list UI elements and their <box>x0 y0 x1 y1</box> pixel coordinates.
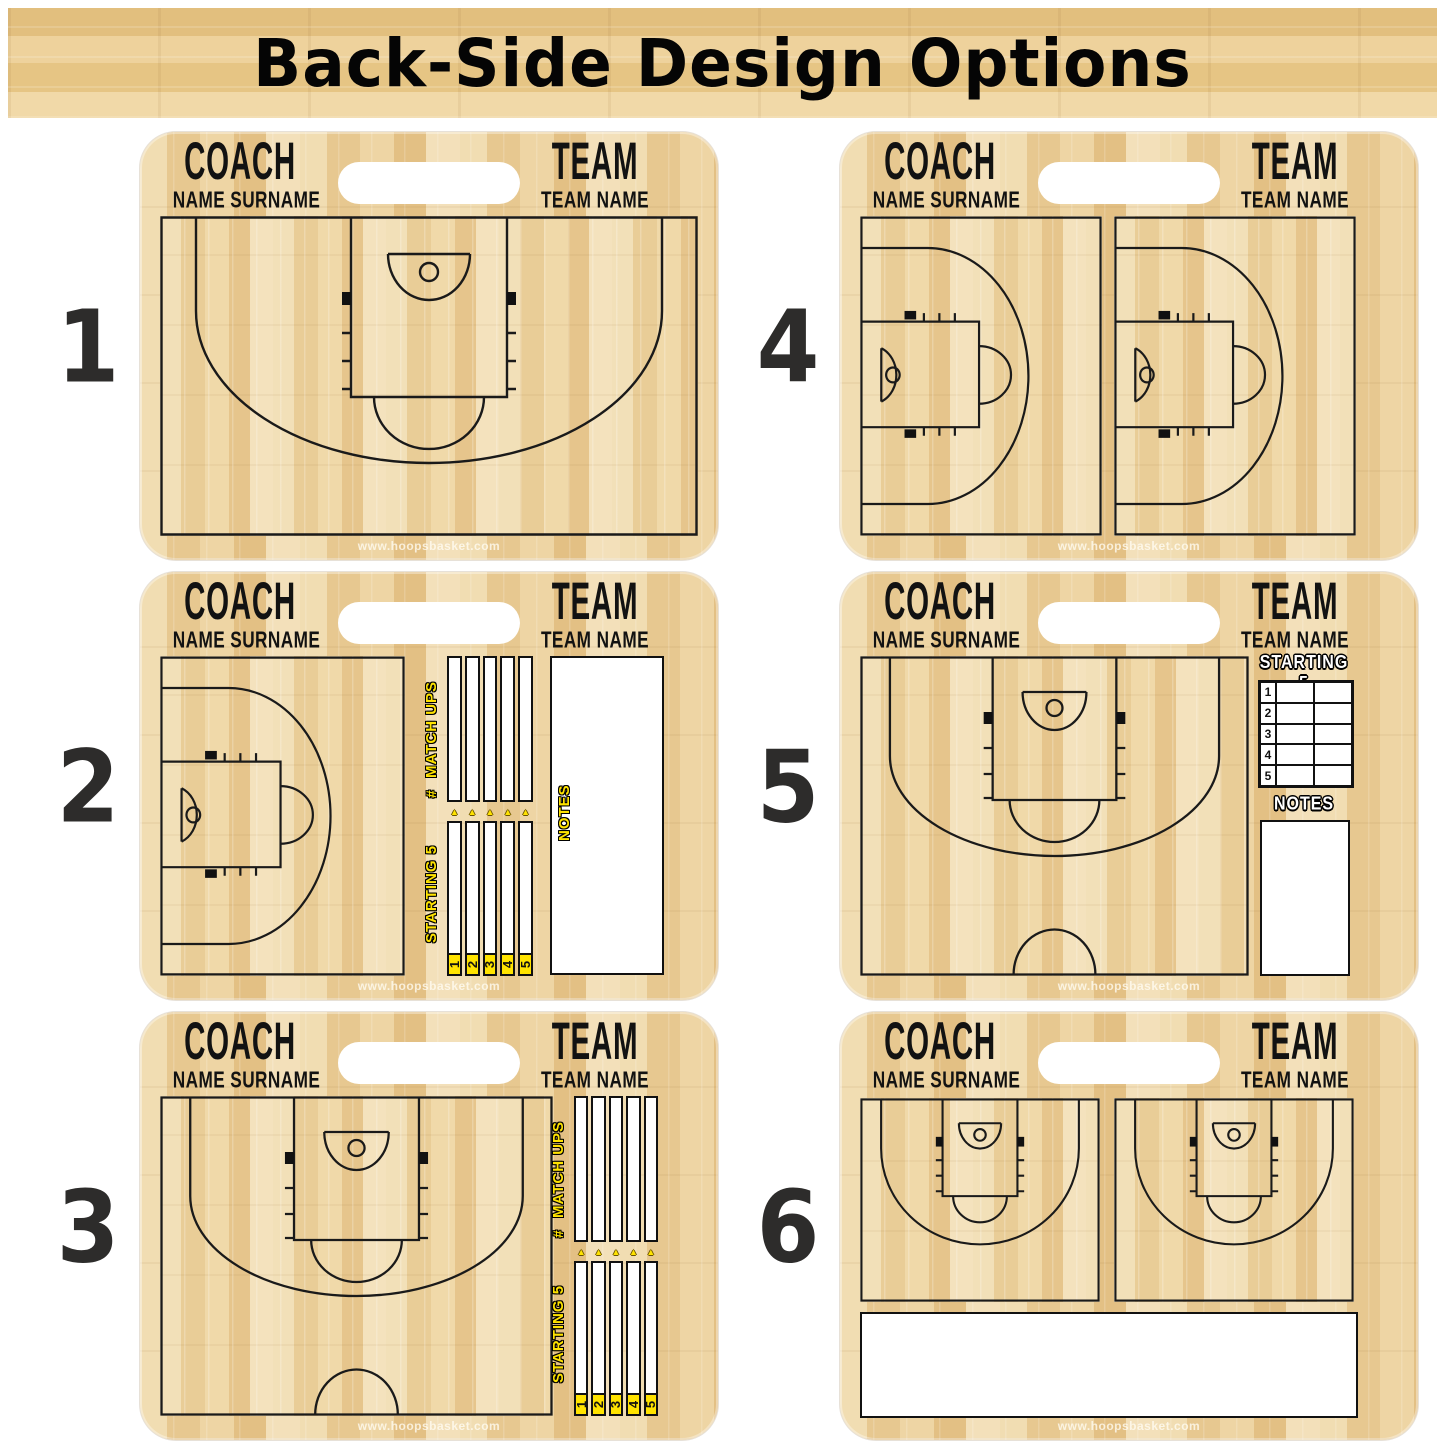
matchups-starting5-panel: MATCH UPS # STARTING 5 ▲▲▲▲▲ 1 2 3 4 5 <box>447 656 533 976</box>
side-court-diagram <box>160 656 405 976</box>
coach-label: COACH <box>181 1014 299 1069</box>
side-court-diagram-right <box>1114 216 1356 536</box>
half-court-diagram <box>160 1096 553 1416</box>
coach-name: NAME SURNAME <box>873 1068 1007 1095</box>
strip-marker-icon: ▲ <box>626 1245 640 1258</box>
coach-label: COACH <box>881 1014 999 1069</box>
notes-area <box>1260 820 1350 976</box>
strip-marker-icon: ▲ <box>591 1245 605 1258</box>
starting5-strips: 1 2 3 4 5 <box>447 821 533 976</box>
coach-label: COACH <box>181 574 299 629</box>
row-number: 5 <box>1260 765 1276 786</box>
starter-number-cell: 2 <box>593 1393 603 1414</box>
matchups-strips <box>574 1096 658 1242</box>
team-name: TEAM NAME <box>1225 628 1364 655</box>
watermark: www.hoopsbasket.com <box>140 1419 718 1433</box>
strip-marker-icon: ▲ <box>518 805 533 818</box>
free-throw-arc <box>979 346 1011 404</box>
option-number-5: 5 <box>744 736 831 841</box>
three-point-line <box>890 658 1219 856</box>
watermark: www.hoopsbasket.com <box>840 979 1418 993</box>
starter-number-cell: 1 <box>449 953 460 974</box>
coach-name: NAME SURNAME <box>873 188 1007 215</box>
starter-number-cell: 5 <box>646 1393 656 1414</box>
starter-number-cell: 4 <box>502 953 513 974</box>
watermark: www.hoopsbasket.com <box>840 1419 1418 1433</box>
charge-arc <box>881 348 896 401</box>
option-number-2: 2 <box>44 736 131 841</box>
team-name: TEAM NAME <box>525 1068 664 1095</box>
team-label: TEAM <box>1234 1014 1356 1069</box>
side-court-diagram-left <box>860 216 1102 536</box>
header-banner: Back-Side Design Options <box>8 8 1437 118</box>
team-label: TEAM <box>1234 134 1356 189</box>
notes-label: NOTES <box>556 718 573 908</box>
board-option-6: COACH NAME SURNAME TEAM TEAM NAME <box>840 1012 1418 1440</box>
number-sign-label: # <box>423 774 439 814</box>
charge-arc <box>388 254 470 300</box>
handle-cutout <box>1038 602 1220 644</box>
team-name: TEAM NAME <box>525 628 664 655</box>
starter-number-cell: 4 <box>628 1393 638 1414</box>
starter-number-cell: 1 <box>576 1393 586 1414</box>
board-option-4: COACH NAME SURNAME TEAM TEAM NAME <box>840 132 1418 560</box>
board-option-1: COACH NAME SURNAME TEAM TEAM NAME <box>140 132 718 560</box>
page-title: Back-Side Design Options <box>253 25 1192 102</box>
coach-label: COACH <box>181 134 299 189</box>
notes-area <box>860 1312 1358 1418</box>
starter-number-cell: 2 <box>467 953 478 974</box>
option-number-1: 1 <box>44 296 131 401</box>
free-throw-arc <box>374 397 484 449</box>
team-label: TEAM <box>534 134 656 189</box>
number-sign-label: # <box>550 1214 566 1254</box>
team-name: TEAM NAME <box>1225 1068 1364 1095</box>
starting5-label: STARTING 5 <box>423 832 440 956</box>
starter-number-cell: 3 <box>485 953 496 974</box>
board-option-2: COACH NAME SURNAME TEAM TEAM NAME <box>140 572 718 1000</box>
row-number: 1 <box>1260 682 1276 703</box>
key-lane <box>351 218 507 398</box>
handle-cutout <box>338 1042 520 1084</box>
page: Back-Side Design Options 1 2 3 4 5 6 COA… <box>0 0 1445 1445</box>
rim <box>886 367 900 382</box>
half-court-diagram-right <box>1114 1098 1354 1302</box>
starting5-strips: 1 2 3 4 5 <box>574 1261 658 1416</box>
option-number-6: 6 <box>744 1176 831 1281</box>
matchups-starting5-panel: MATCH UPS # STARTING 5 ▲▲▲▲▲ 1 2 3 4 5 <box>574 1096 658 1416</box>
starter-number-cell: 3 <box>611 1393 621 1414</box>
key-lane <box>861 322 979 428</box>
handle-cutout <box>1038 1042 1220 1084</box>
team-label: TEAM <box>534 1014 656 1069</box>
coach-name: NAME SURNAME <box>173 188 307 215</box>
strip-marker-icon: ▲ <box>609 1245 623 1258</box>
coach-label: COACH <box>881 574 999 629</box>
option-number-3: 3 <box>44 1176 131 1281</box>
center-circle <box>1014 930 1096 975</box>
row-number: 2 <box>1260 703 1276 724</box>
watermark: www.hoopsbasket.com <box>140 979 718 993</box>
strip-marker-icon: ▲ <box>644 1245 658 1258</box>
watermark: www.hoopsbasket.com <box>140 539 718 553</box>
notes-title: NOTES <box>1258 795 1350 816</box>
option-number-4: 4 <box>744 296 831 401</box>
handle-cutout <box>338 602 520 644</box>
coach-name: NAME SURNAME <box>173 1068 307 1095</box>
row-number: 4 <box>1260 744 1276 765</box>
handle-cutout <box>1038 162 1220 204</box>
strip-marker-icon: ▲ <box>574 1245 588 1258</box>
half-court-diagram-left <box>860 1098 1100 1302</box>
strip-marker-icon: ▲ <box>447 805 462 818</box>
strip-marker-icon: ▲ <box>483 805 498 818</box>
team-label: TEAM <box>1234 574 1356 629</box>
team-label: TEAM <box>534 574 656 629</box>
starting5-table: 1 2 3 4 5 <box>1258 680 1354 788</box>
board-option-3: COACH NAME SURNAME TEAM TEAM NAME <box>140 1012 718 1440</box>
team-name: TEAM NAME <box>525 188 664 215</box>
coach-name: NAME SURNAME <box>173 628 307 655</box>
strip-marker-icon: ▲ <box>500 805 515 818</box>
row-number: 3 <box>1260 724 1276 745</box>
board-option-5: COACH NAME SURNAME TEAM TEAM NAME <box>840 572 1418 1000</box>
starting5-label: STARTING 5 <box>550 1272 567 1396</box>
matchups-strips <box>447 656 533 802</box>
strip-marker-icon: ▲ <box>465 805 480 818</box>
half-court-diagram <box>860 656 1249 976</box>
rim <box>420 263 438 281</box>
team-name: TEAM NAME <box>1225 188 1364 215</box>
watermark: www.hoopsbasket.com <box>840 539 1418 553</box>
notes-area: NOTES <box>550 656 664 975</box>
coach-name: NAME SURNAME <box>873 628 1007 655</box>
coach-label: COACH <box>881 134 999 189</box>
half-court-diagram <box>160 216 698 536</box>
handle-cutout <box>338 162 520 204</box>
starter-number-cell: 5 <box>520 953 531 974</box>
